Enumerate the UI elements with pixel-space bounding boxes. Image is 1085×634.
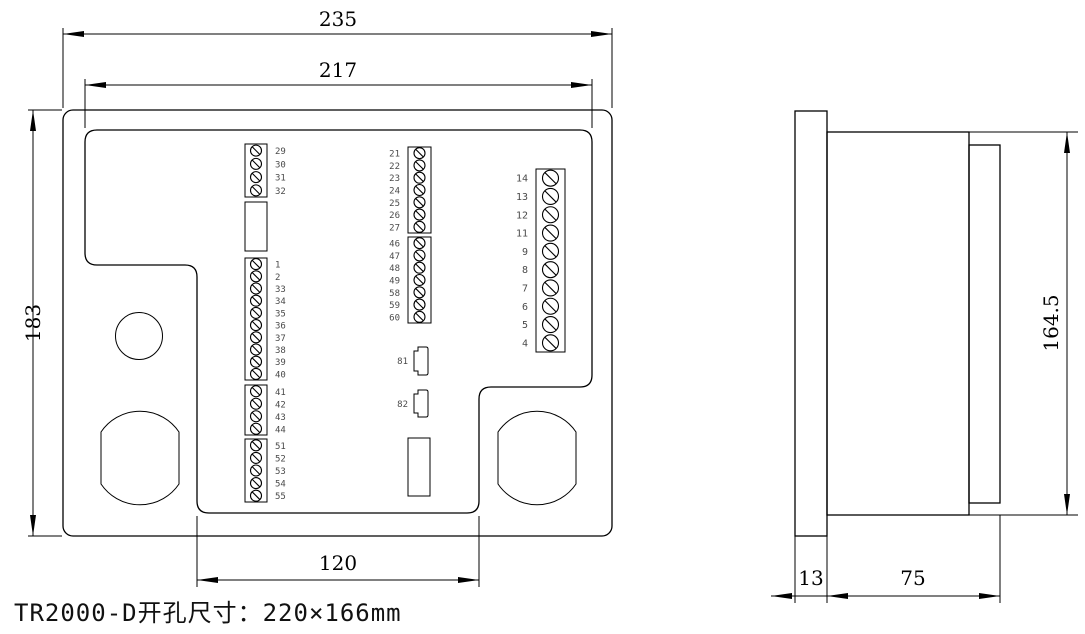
dim-arrow-icon xyxy=(63,31,84,37)
block-4-14: 14131211987654 xyxy=(516,169,565,352)
dim-arrow-icon xyxy=(1064,132,1070,153)
dim-arrow-icon xyxy=(771,593,792,599)
dim-value-217: 217 xyxy=(319,58,357,82)
terminal-label: 58 xyxy=(389,289,400,299)
terminal-screw-slot-icon xyxy=(252,358,260,366)
terminal-label: 32 xyxy=(275,187,286,197)
side-view xyxy=(795,111,1000,536)
terminal-label: 31 xyxy=(275,174,286,184)
dim-arrow-icon xyxy=(591,31,612,37)
terminal-label: 46 xyxy=(389,240,400,250)
terminal-label: 59 xyxy=(389,301,400,311)
terminal-label: 1 xyxy=(275,261,280,271)
dim-arrow-icon xyxy=(571,82,592,88)
terminal-label: 36 xyxy=(275,322,286,332)
terminal-label: 5 xyxy=(522,320,528,331)
dim-arrow-icon xyxy=(197,577,218,583)
side-bezel-outline xyxy=(795,111,827,536)
terminal-label: 24 xyxy=(389,187,400,197)
terminal-label: 48 xyxy=(389,264,400,274)
front-view: 2930313212333435363738394041424344515253… xyxy=(63,110,612,536)
terminal-label: 38 xyxy=(275,346,286,356)
terminal-label: 49 xyxy=(389,277,400,287)
terminal-label: 39 xyxy=(275,358,286,368)
terminal-screw-slot-icon xyxy=(252,285,260,293)
terminal-label: 29 xyxy=(275,147,286,157)
dim-arrow-icon xyxy=(85,82,106,88)
terminal-label: 44 xyxy=(275,425,286,435)
terminal-screw-slot-icon xyxy=(416,239,424,247)
terminal-label: 43 xyxy=(275,413,286,423)
terminal-label: 2 xyxy=(275,273,280,283)
connector-81-label: 81 xyxy=(397,357,408,367)
terminal-screw-slot-icon xyxy=(252,400,260,408)
bottom-module-slot xyxy=(408,438,430,496)
cutout-hole-right xyxy=(498,411,576,505)
terminal-screw-slot-icon xyxy=(416,211,424,219)
terminal-screw-slot-icon xyxy=(252,479,260,487)
terminal-block-outline xyxy=(245,385,267,435)
dim-value-183: 183 xyxy=(21,304,45,342)
terminal-screw-slot-icon xyxy=(416,198,424,206)
terminal-label: 37 xyxy=(275,334,286,344)
dim-value-235: 235 xyxy=(319,7,357,31)
block-21-27: 21222324252627 xyxy=(389,147,431,233)
terminal-screw-slot-icon xyxy=(545,209,556,220)
terminal-block-outline xyxy=(245,144,267,197)
terminal-screw-slot-icon xyxy=(545,246,556,257)
terminal-label: 26 xyxy=(389,211,400,221)
terminal-label: 47 xyxy=(389,252,400,262)
terminal-screw-slot-icon xyxy=(545,301,556,312)
blank-module-slot xyxy=(245,202,267,251)
cutout-hole-left xyxy=(101,411,179,505)
terminal-label: 14 xyxy=(516,174,528,185)
terminal-label: 25 xyxy=(389,199,400,209)
terminal-label: 52 xyxy=(275,454,286,464)
dim-front-inner-width: 217 xyxy=(85,58,592,128)
terminal-screw-slot-icon xyxy=(252,492,260,500)
terminal-screw-slot-icon xyxy=(252,321,260,329)
technical-drawing-page: 2930313212333435363738394041424344515253… xyxy=(0,0,1085,634)
terminal-label: 53 xyxy=(275,467,286,477)
terminal-label: 11 xyxy=(516,229,528,240)
dim-side-body-depth: 75 xyxy=(827,515,1000,603)
dim-arrow-icon xyxy=(30,110,36,131)
connector-82: 82 xyxy=(397,390,428,417)
terminal-screw-slot-icon xyxy=(545,264,556,275)
dim-value-13: 13 xyxy=(798,566,823,590)
terminal-screw-slot-icon xyxy=(252,387,260,395)
connector-82-outline xyxy=(414,390,428,417)
connector-81-outline xyxy=(414,347,428,375)
terminal-screw-slot-icon xyxy=(252,187,260,195)
terminal-label: 12 xyxy=(516,210,528,221)
dim-value-75: 75 xyxy=(900,566,925,590)
terminal-label: 51 xyxy=(275,442,286,452)
terminal-blocks-layer: 2930313212333435363738394041424344515253… xyxy=(245,144,565,502)
terminal-screw-slot-icon xyxy=(416,313,424,321)
terminal-screw-slot-icon xyxy=(545,191,556,202)
terminal-label: 35 xyxy=(275,309,286,319)
terminal-screw-slot-icon xyxy=(252,147,260,155)
side-rear-terminal-outline xyxy=(969,145,1000,503)
terminal-label: 40 xyxy=(275,370,286,380)
dim-arrow-icon xyxy=(458,577,479,583)
terminal-label: 7 xyxy=(522,283,528,294)
dim-value-120: 120 xyxy=(319,551,357,575)
terminal-screw-slot-icon xyxy=(252,260,260,268)
block-51-55: 5152535455 xyxy=(245,439,286,502)
terminal-label: 30 xyxy=(275,160,286,170)
terminal-screw-slot-icon xyxy=(416,162,424,170)
terminal-screw-slot-icon xyxy=(545,173,556,184)
terminal-screw-slot-icon xyxy=(416,223,424,231)
dim-arrow-icon xyxy=(827,593,848,599)
terminal-label: 6 xyxy=(522,302,528,313)
dim-side-bezel-depth: 13 xyxy=(771,536,827,603)
terminal-label: 55 xyxy=(275,492,286,502)
dim-arrow-icon xyxy=(1064,494,1070,515)
panel-outer-outline xyxy=(63,110,612,536)
dim-arrow-icon xyxy=(979,593,1000,599)
terminal-screw-slot-icon xyxy=(252,425,260,433)
terminal-screw-slot-icon xyxy=(252,412,260,420)
terminal-screw-slot-icon xyxy=(416,264,424,272)
dim-front-notch-width: 120 xyxy=(197,516,479,587)
terminal-label: 34 xyxy=(275,297,286,307)
block-29-32: 29303132 xyxy=(245,144,286,197)
terminal-screw-slot-icon xyxy=(252,441,260,449)
terminal-label: 23 xyxy=(389,174,400,184)
terminal-screw-slot-icon xyxy=(252,454,260,462)
side-body-outline xyxy=(827,132,969,515)
terminal-screw-slot-icon xyxy=(416,149,424,157)
dim-value-164-5: 164.5 xyxy=(1039,294,1063,351)
terminal-screw-slot-icon xyxy=(545,319,556,330)
dim-front-height: 183 xyxy=(21,110,62,536)
dim-arrow-icon xyxy=(30,515,36,536)
terminal-label: 8 xyxy=(522,265,528,276)
terminal-label: 21 xyxy=(389,150,400,160)
terminal-screw-slot-icon xyxy=(416,186,424,194)
panel-drawing-svg: 2930313212333435363738394041424344515253… xyxy=(0,0,1085,634)
terminal-screw-slot-icon xyxy=(545,227,556,238)
terminal-screw-slot-icon xyxy=(252,272,260,280)
terminal-screw-slot-icon xyxy=(252,467,260,475)
terminal-screw-slot-icon xyxy=(252,173,260,181)
terminal-screw-slot-icon xyxy=(416,252,424,260)
block-1-40: 123334353637383940 xyxy=(245,258,286,380)
terminal-screw-slot-icon xyxy=(416,301,424,309)
block-46-60: 46474849585960 xyxy=(389,237,431,323)
terminal-screw-slot-icon xyxy=(252,346,260,354)
terminal-screw-slot-icon xyxy=(252,297,260,305)
terminal-screw-slot-icon xyxy=(252,160,260,168)
terminal-label: 9 xyxy=(522,247,528,258)
terminal-screw-slot-icon xyxy=(416,174,424,182)
terminal-screw-slot-icon xyxy=(252,309,260,317)
terminal-label: 33 xyxy=(275,285,286,295)
terminal-screw-slot-icon xyxy=(545,282,556,293)
terminal-label: 13 xyxy=(516,192,528,203)
terminal-label: 27 xyxy=(389,223,400,233)
dim-side-height: 164.5 xyxy=(969,132,1078,515)
block-41-44: 41424344 xyxy=(245,385,286,435)
drawing-caption: TR2000-D开孔尺寸：220×166mm xyxy=(14,599,402,627)
terminal-screw-slot-icon xyxy=(416,276,424,284)
terminal-screw-slot-icon xyxy=(545,337,556,348)
terminal-screw-slot-icon xyxy=(252,333,260,341)
terminal-label: 60 xyxy=(389,313,400,323)
terminal-label: 4 xyxy=(522,338,528,349)
terminal-label: 42 xyxy=(275,400,286,410)
terminal-screw-slot-icon xyxy=(252,370,260,378)
mounting-hole-small xyxy=(116,313,163,360)
terminal-screw-slot-icon xyxy=(416,288,424,296)
panel-recess-outline xyxy=(85,130,592,513)
connector-82-label: 82 xyxy=(397,400,408,410)
terminal-label: 22 xyxy=(389,162,400,172)
terminal-label: 54 xyxy=(275,480,286,490)
terminal-label: 41 xyxy=(275,388,286,398)
connector-81: 81 xyxy=(397,347,428,375)
